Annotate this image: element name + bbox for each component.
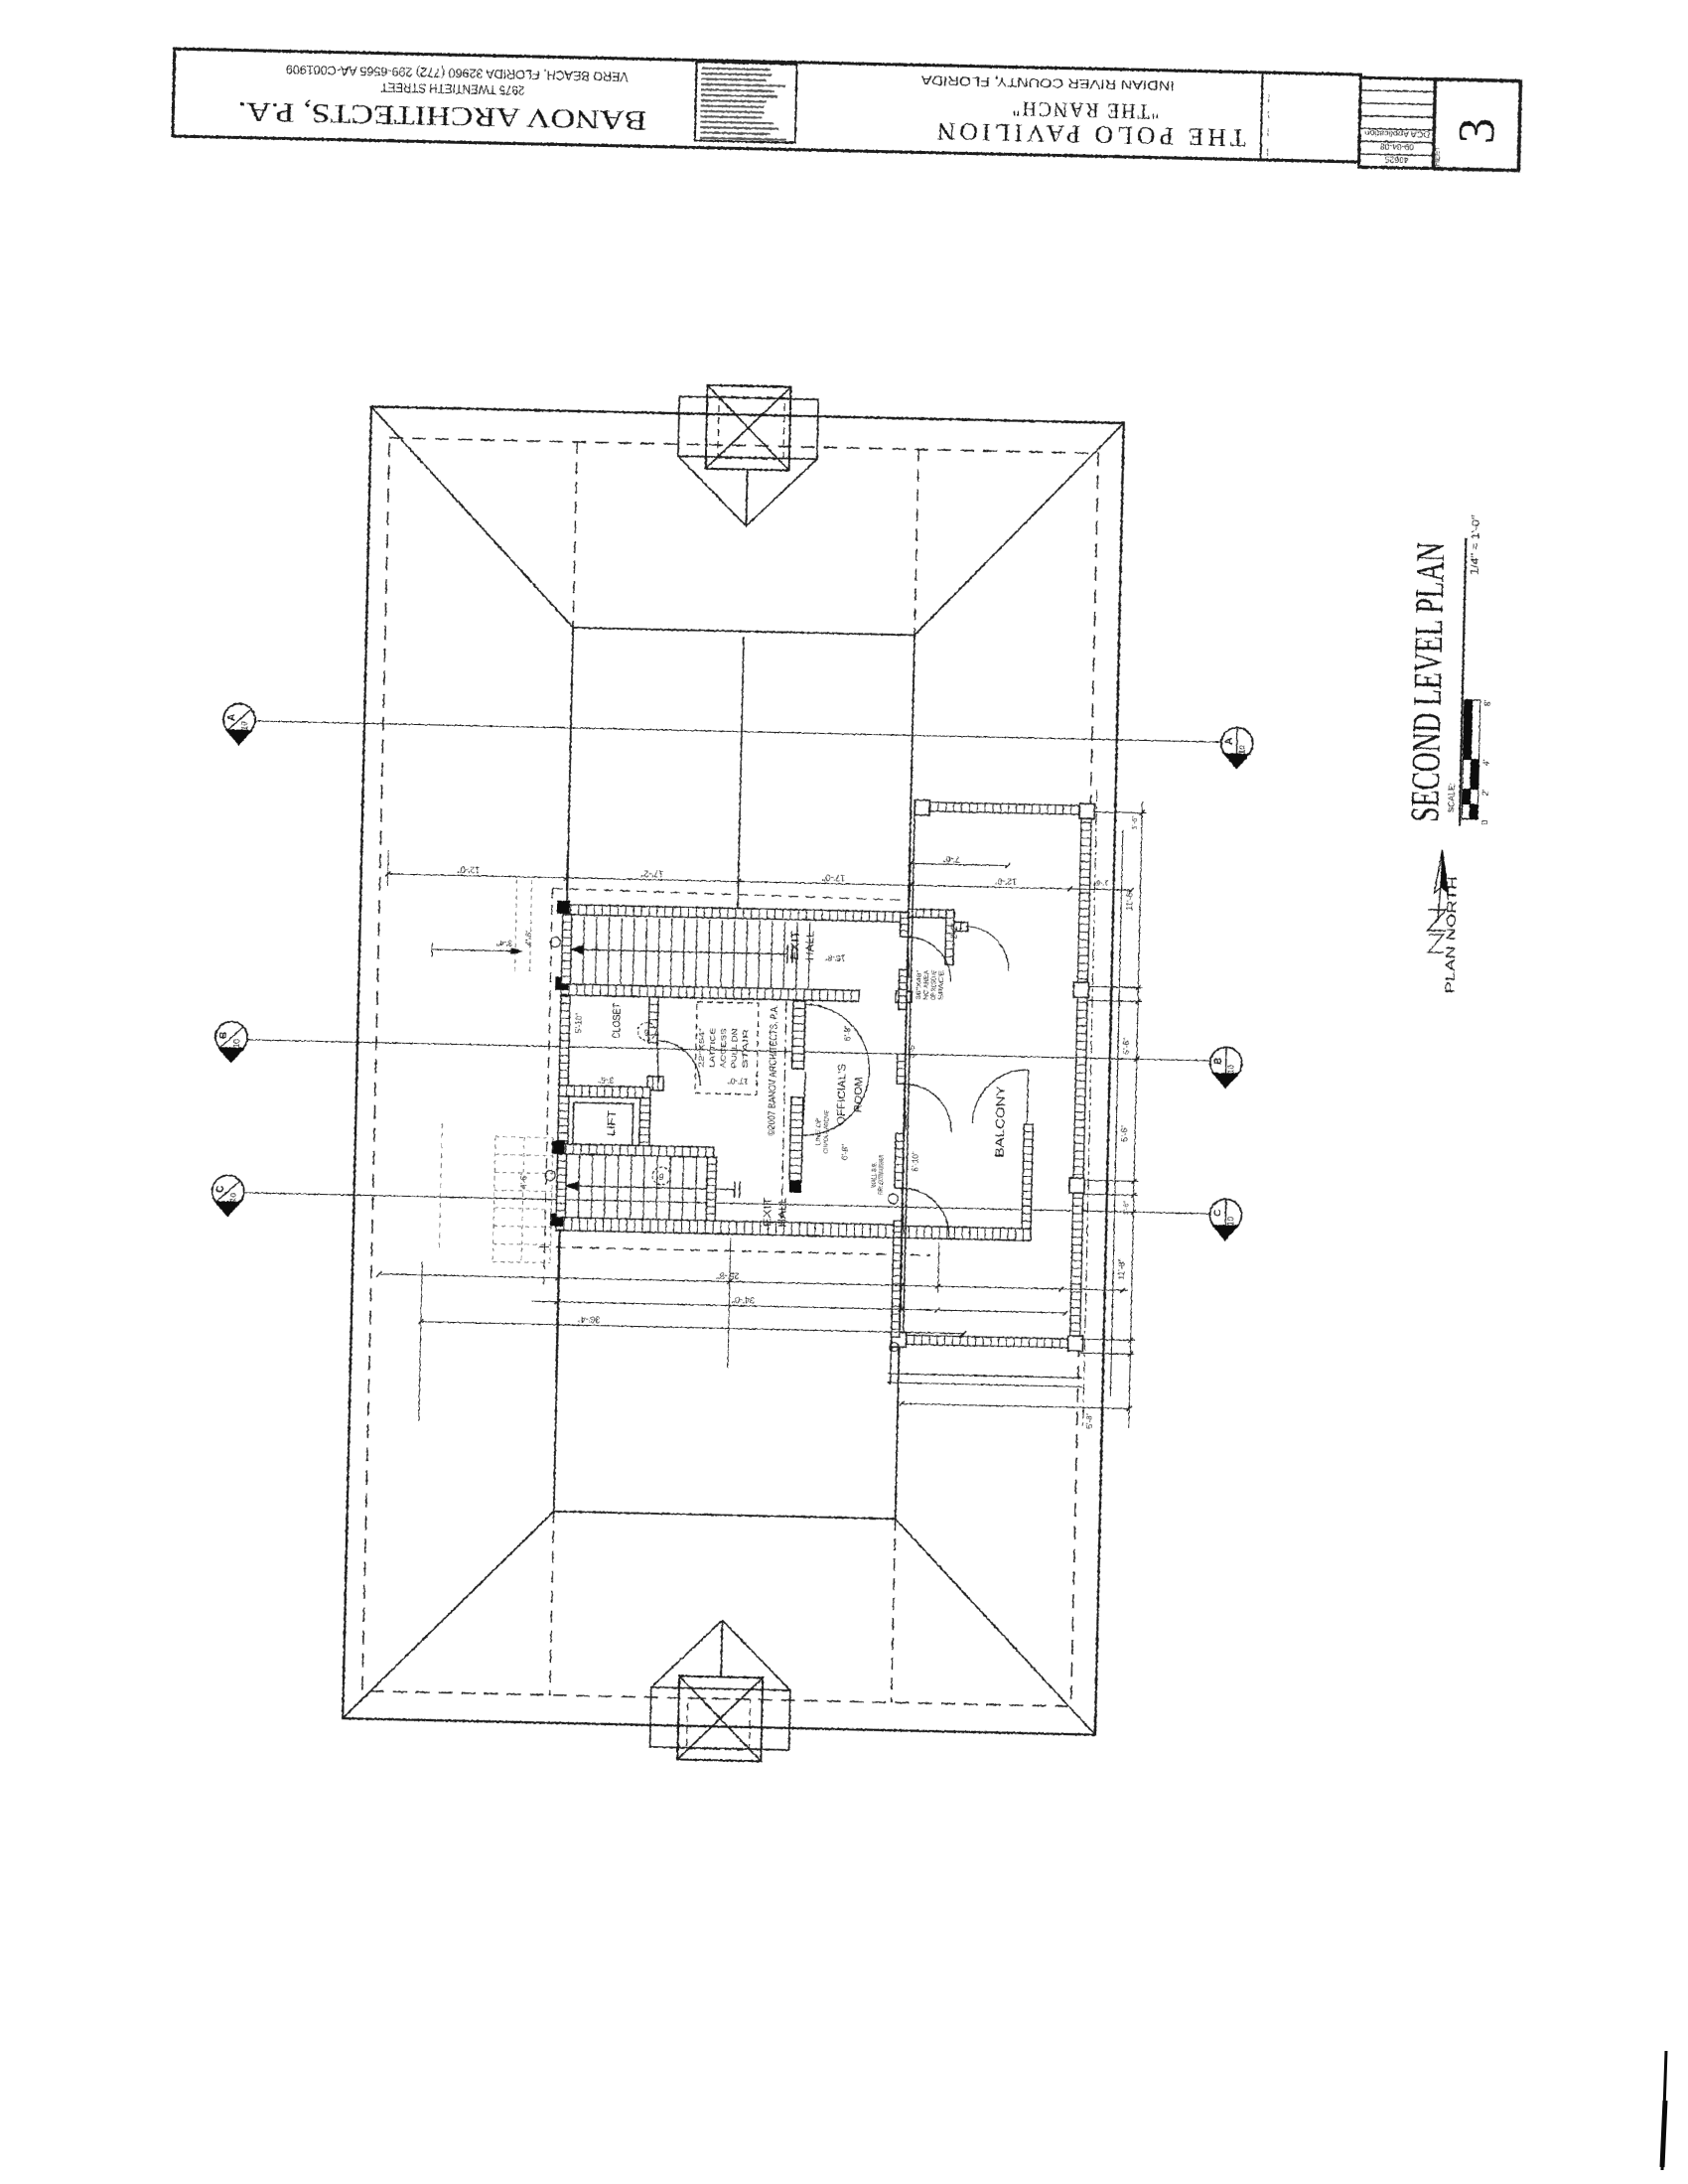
svg-text:1'-6": 1'-6" <box>1132 815 1139 830</box>
svg-text:EXIT: EXIT <box>789 930 802 960</box>
svg-text:12'-0": 12'-0" <box>994 876 1017 886</box>
svg-text:10: 10 <box>240 721 249 731</box>
svg-text:ROOM: ROOM <box>853 1077 866 1112</box>
svg-text:6'-8": 6'-8" <box>841 1144 850 1160</box>
svg-text:DCA Application: DCA Application <box>1364 128 1430 139</box>
svg-text:SHEET: SHEET <box>1432 146 1442 172</box>
svg-text:¦: ¦ <box>1267 148 1269 157</box>
svg-text:2': 2' <box>1480 789 1490 796</box>
svg-text:SECOND LEVEL PLAN: SECOND LEVEL PLAN <box>1402 541 1453 822</box>
svg-text:SPACE: SPACE <box>938 969 946 1000</box>
svg-text:¦: ¦ <box>1267 128 1269 137</box>
svg-text:PLAN NORTH: PLAN NORTH <box>1442 876 1460 993</box>
svg-text:36"X48": 36"X48" <box>915 969 923 1000</box>
svg-text:15'-8": 15'-8" <box>825 953 846 962</box>
svg-text:3: 3 <box>1449 117 1506 144</box>
svg-text:LIFT: LIFT <box>606 1109 619 1136</box>
svg-text:A: A <box>226 714 237 721</box>
svg-text:VERO BEACH, FLORIDA 32960 (772: VERO BEACH, FLORIDA 32960 (772) 299-6565… <box>286 62 629 84</box>
svg-text:5'-6": 5'-6" <box>1121 1038 1131 1055</box>
svg-text:25'-8": 25'-8" <box>716 1270 739 1280</box>
svg-text:7'-6": 7'-6" <box>943 854 960 864</box>
svg-text:6'-8": 6'-8" <box>843 1025 852 1041</box>
svg-text:ACCESS: ACCESS <box>721 1028 729 1069</box>
svg-text:9: 9 <box>644 1029 649 1038</box>
svg-text:¦: ¦ <box>1268 94 1270 103</box>
svg-text:1/4" = 1'-0": 1/4" = 1'-0" <box>1470 515 1482 575</box>
svg-text:2'-2": 2'-2" <box>949 923 958 939</box>
svg-text:5'-8": 5'-8" <box>1085 1412 1094 1428</box>
svg-text:B: B <box>218 1032 229 1039</box>
svg-text:PULL DN: PULL DN <box>732 1029 740 1069</box>
svg-text:OF RESCUE: OF RESCUE <box>930 969 938 1000</box>
svg-text:10: 10 <box>1226 1216 1235 1226</box>
svg-text:©2007 BANOV ARCHITECTS, P.A.: ©2007 BANOV ARCHITECTS, P.A. <box>766 1004 780 1135</box>
svg-text:HALL: HALL <box>804 931 817 960</box>
svg-text:CLOSET: CLOSET <box>611 1003 624 1039</box>
svg-text:¦: ¦ <box>1267 110 1269 119</box>
svg-text:BANOV ARCHITECTS, P.A.: BANOV ARCHITECTS, P.A. <box>237 96 647 135</box>
svg-text:0: 0 <box>1479 819 1489 824</box>
svg-text:"THE RANCH": "THE RANCH" <box>1010 96 1159 123</box>
svg-text:5'-6": 5'-6" <box>1119 1125 1129 1142</box>
svg-text:17'-0": 17'-0" <box>728 1076 749 1085</box>
svg-text:10: 10 <box>1227 1064 1236 1074</box>
svg-text:4'-6": 4'-6" <box>524 930 533 946</box>
svg-text:HALL: HALL <box>776 1198 789 1228</box>
svg-text:BALCONY: BALCONY <box>995 1086 1009 1158</box>
svg-text:A: A <box>1224 738 1235 745</box>
svg-text:4': 4' <box>1480 759 1490 766</box>
svg-text:5'-10": 5'-10" <box>574 1013 583 1034</box>
svg-text:3'-5": 3'-5" <box>598 1076 614 1085</box>
svg-text:40625: 40625 <box>1384 155 1408 166</box>
svg-text:SCALE:: SCALE: <box>1447 783 1457 812</box>
svg-text:12'-0": 12'-0" <box>457 864 480 874</box>
svg-text:11'-6": 11'-6" <box>1124 890 1134 911</box>
svg-text:HC AREA: HC AREA <box>923 969 931 1000</box>
svg-text:10: 10 <box>232 1039 241 1049</box>
svg-text:11'-8": 11'-8" <box>1116 1259 1126 1280</box>
svg-text:LATTICE: LATTICE <box>710 1028 718 1069</box>
svg-text:FIRE EXTINGUISHER: FIRE EXTINGUISHER <box>879 1154 886 1195</box>
svg-text:8': 8' <box>1482 699 1492 706</box>
svg-text:09-04-08: 09-04-08 <box>1380 142 1415 153</box>
svg-text:17'-2": 17'-2" <box>640 868 663 878</box>
svg-text:22"X54": 22"X54" <box>699 1027 707 1068</box>
svg-text:4'-6": 4'-6" <box>519 1173 528 1189</box>
svg-text:10: 10 <box>1238 745 1247 755</box>
svg-text:CUPOLA ABOVE: CUPOLA ABOVE <box>823 1109 831 1154</box>
svg-text:34'-0": 34'-0" <box>732 1295 755 1305</box>
svg-text:B: B <box>1213 1057 1224 1064</box>
svg-text:9: 9 <box>659 1173 664 1182</box>
svg-text:LINE OF: LINE OF <box>815 1117 823 1145</box>
svg-text:WALL B.B.: WALL B.B. <box>872 1161 879 1187</box>
svg-text:C: C <box>215 1186 226 1193</box>
svg-text:EXIT: EXIT <box>762 1197 774 1228</box>
svg-text:C: C <box>1212 1210 1223 1217</box>
svg-text:36'-4": 36'-4" <box>577 1314 600 1324</box>
svg-text:17'-0": 17'-0" <box>822 872 845 882</box>
svg-text:STAIR: STAIR <box>743 1029 751 1069</box>
svg-text:1'-6": 1'-6" <box>1123 1201 1130 1216</box>
svg-text:INDIAN RIVER COUNTY, FLORIDA: INDIAN RIVER COUNTY, FLORIDA <box>920 73 1175 92</box>
svg-text:3'-4": 3'-4" <box>496 938 512 946</box>
svg-text:OFFICIAL'S: OFFICIAL'S <box>835 1064 848 1125</box>
svg-text:6'-10": 6'-10" <box>911 1151 919 1172</box>
svg-text:10: 10 <box>228 1193 237 1203</box>
